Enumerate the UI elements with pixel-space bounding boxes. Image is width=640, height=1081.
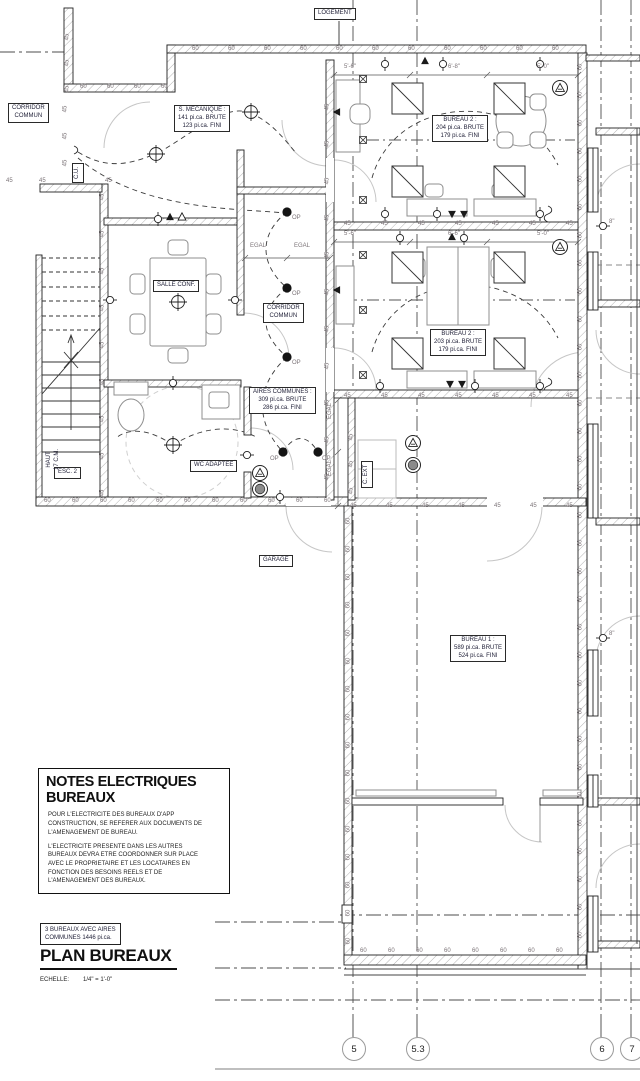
thermostat-icon bbox=[553, 81, 568, 96]
desk bbox=[474, 199, 536, 216]
wall-sconce-icon bbox=[381, 57, 388, 71]
ceiling-outlet-icon bbox=[282, 207, 291, 216]
area-summary-box: 3 BUREAUX AVEC AIRES COMMUNES 1446 pi.ca… bbox=[40, 923, 121, 945]
toilet-tank bbox=[114, 382, 148, 395]
grid-bubble-leaders bbox=[353, 1014, 631, 1037]
shelf bbox=[356, 790, 496, 796]
triangle-marker-icon bbox=[421, 57, 429, 64]
junction-icon bbox=[406, 458, 421, 473]
notes-paragraph-2: L'ELECTRICITE PRESENTE DANS LES AUTRES B… bbox=[48, 843, 210, 886]
notes-electriques-block: NOTES ELECTRIQUES BUREAUX POUR L'ELECTRI… bbox=[38, 768, 230, 894]
stairs bbox=[42, 255, 100, 452]
plan-title: PLAN BUREAUX bbox=[40, 946, 177, 970]
sink bbox=[209, 392, 229, 408]
cabinet bbox=[336, 266, 354, 324]
scale-value: 1/4" = 1'-0" bbox=[83, 977, 112, 983]
plan-linework bbox=[0, 0, 640, 1081]
notes-paragraph-1: POUR L'ELECTRICITE DES BUREAUX D'APP CON… bbox=[48, 811, 210, 837]
desk bbox=[474, 371, 536, 388]
floor-plan-sheet: 6060606060606060606060606060604545454545… bbox=[0, 0, 640, 1081]
toilet-bowl bbox=[118, 399, 144, 431]
windows bbox=[588, 148, 598, 952]
interior-partitions bbox=[342, 798, 583, 923]
desk bbox=[407, 371, 467, 388]
notes-title-line1: NOTES ELECTRIQUES bbox=[46, 774, 222, 790]
scale-label: ECHELLE: bbox=[40, 977, 69, 983]
ceiling-light-icon bbox=[147, 145, 165, 163]
shelf bbox=[543, 790, 581, 796]
scale-note: ECHELLE:1/4" = 1'-0" bbox=[40, 977, 126, 983]
chair bbox=[350, 104, 370, 124]
data-outlet-icon bbox=[360, 76, 367, 83]
notes-title-line2: BUREAUX bbox=[46, 790, 222, 806]
